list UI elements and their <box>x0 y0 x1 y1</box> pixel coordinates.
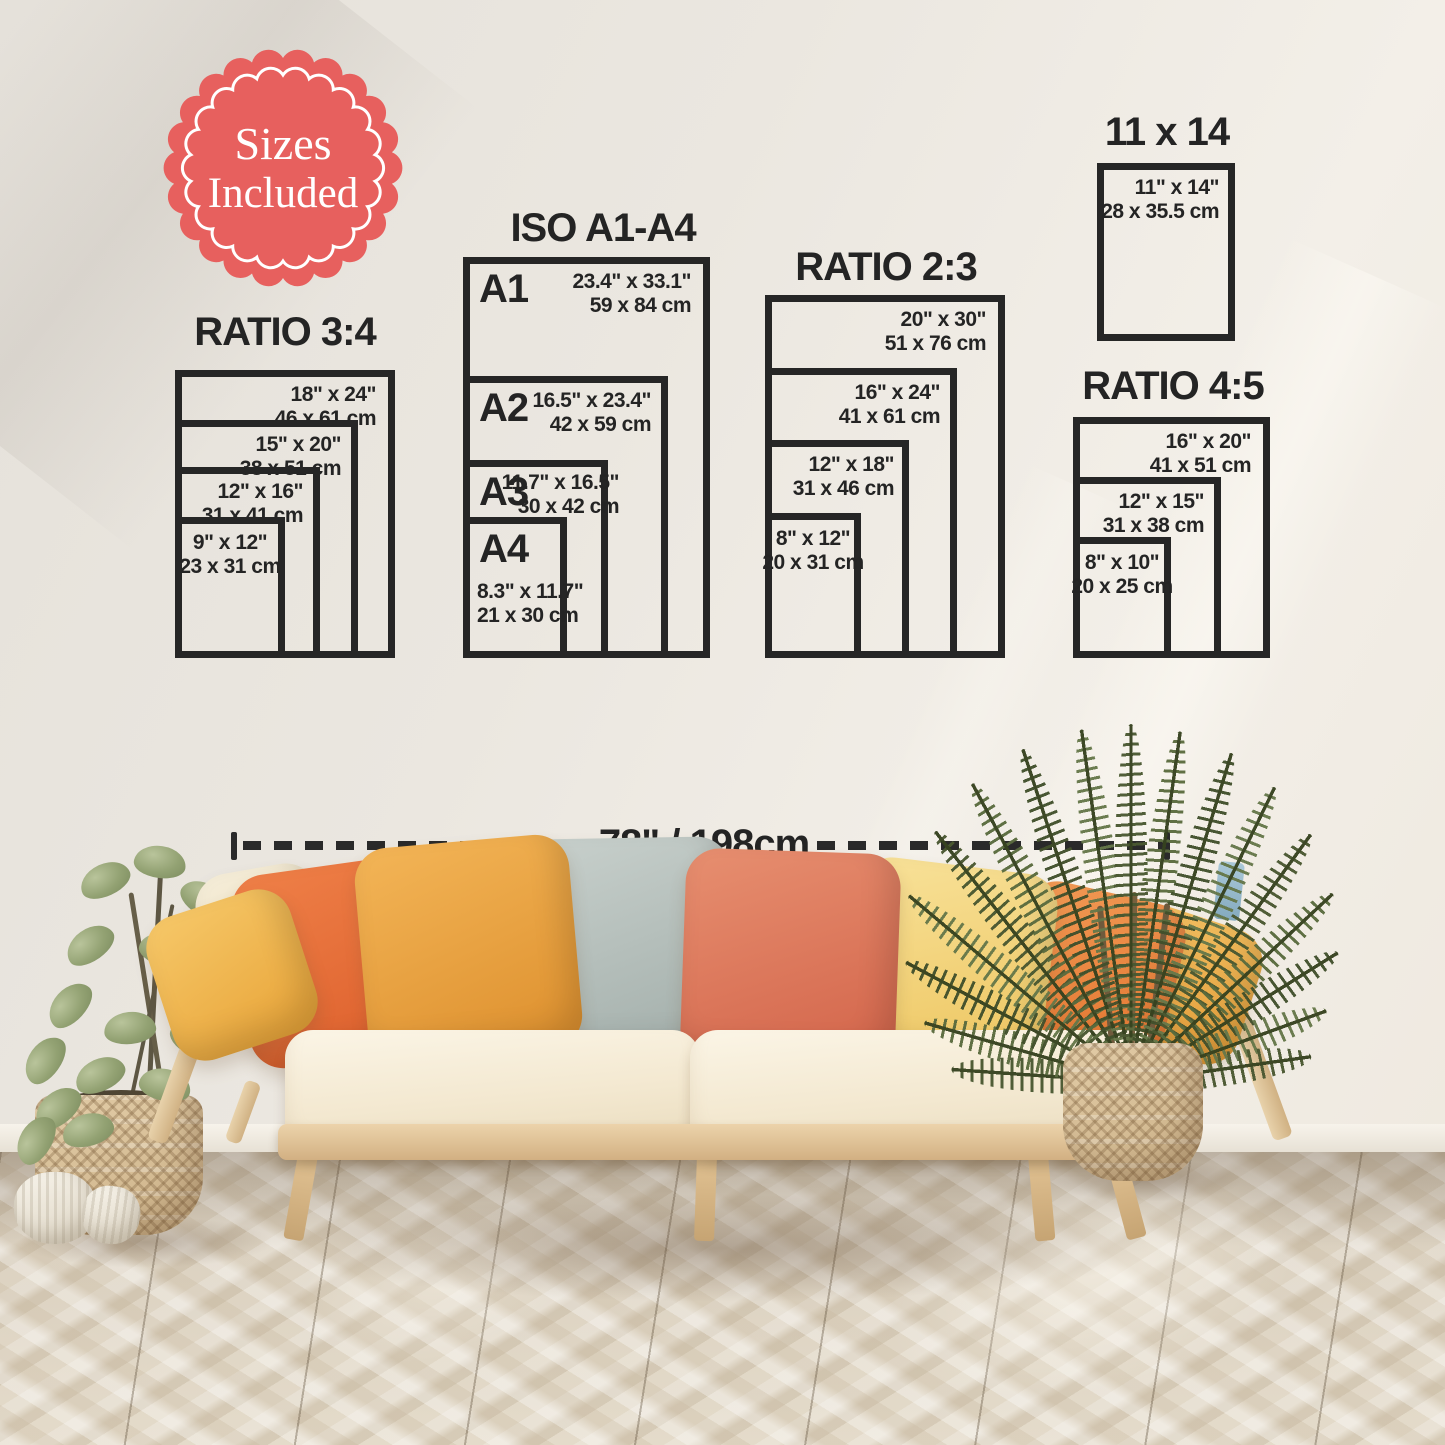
rect-a4: A4 8.3" x 11.7" 21 x 30 cm <box>463 517 567 658</box>
size-inch: 15" x 20" <box>240 433 341 457</box>
label-a1: 23.4" x 33.1" 59 x 84 cm <box>572 270 691 318</box>
fiddle-leaf <box>17 1030 73 1091</box>
room-mockup-scene: Sizes Included RATIO 3:4 18" x 24" 46 x … <box>0 0 1445 1445</box>
fiddle-leaf <box>41 975 100 1035</box>
badge-line2: Included <box>208 170 358 217</box>
label-a2-name: A2 <box>479 386 528 431</box>
sofa-frame-rail <box>278 1124 1168 1160</box>
rect-8x10: 8" x 10" 20 x 25 cm <box>1073 537 1171 658</box>
size-inch: 16" x 20" <box>1150 430 1251 454</box>
rect-9x12: 9" x 12" 23 x 31 cm <box>175 517 285 658</box>
rect-11x14: 11" x 14" 28 x 35.5 cm <box>1097 163 1235 341</box>
size-inch: 20" x 30" <box>885 308 986 332</box>
label-8x12: 8" x 12" 20 x 31 cm <box>762 527 863 575</box>
size-inch: 12" x 18" <box>793 453 894 477</box>
fiddle-leaf <box>75 855 136 906</box>
floor-shade <box>0 1152 1445 1247</box>
title-ratio-3-4: RATIO 3:4 <box>165 310 405 355</box>
size-cm: 42 x 59 cm <box>532 413 651 437</box>
badge-text: Sizes Included <box>161 46 405 290</box>
label-a4: 8.3" x 11.7" 21 x 30 cm <box>477 580 583 628</box>
label-16x24: 16" x 24" 41 x 61 cm <box>839 381 940 429</box>
size-cm: 20 x 31 cm <box>762 551 863 575</box>
size-cm: 31 x 38 cm <box>1103 514 1204 538</box>
size-inch: 16" x 24" <box>839 381 940 405</box>
title-ratio-2-3: RATIO 2:3 <box>762 245 1010 290</box>
badge-line1: Sizes <box>234 119 331 170</box>
sofa-leg-2 <box>694 1155 717 1242</box>
size-cm: 23 x 31 cm <box>179 555 280 579</box>
size-cm: 30 x 42 cm <box>502 495 619 519</box>
label-8x10: 8" x 10" 20 x 25 cm <box>1071 551 1172 599</box>
size-inch: 11.7" x 16.5" <box>502 471 619 495</box>
label-20x30: 20" x 30" 51 x 76 cm <box>885 308 986 356</box>
rect-8x12: 8" x 12" 20 x 31 cm <box>765 513 861 658</box>
size-inch: 23.4" x 33.1" <box>572 270 691 294</box>
size-cm: 28 x 35.5 cm <box>1101 200 1219 224</box>
size-cm: 59 x 84 cm <box>572 294 691 318</box>
size-inch: 18" x 24" <box>275 383 376 407</box>
title-ratio-4-5: RATIO 4:5 <box>1068 364 1278 409</box>
size-inch: 12" x 15" <box>1103 490 1204 514</box>
label-a3: 11.7" x 16.5" 30 x 42 cm <box>502 471 619 519</box>
size-cm: 21 x 30 cm <box>477 604 583 628</box>
size-cm: 51 x 76 cm <box>885 332 986 356</box>
label-9x12: 9" x 12" 23 x 31 cm <box>179 531 280 579</box>
size-inch: 16.5" x 23.4" <box>532 389 651 413</box>
size-inch: 8" x 12" <box>762 527 863 551</box>
title-iso-a1-a4: ISO A1-A4 <box>463 206 743 251</box>
size-inch: 9" x 12" <box>179 531 280 555</box>
size-cm: 20 x 25 cm <box>1071 575 1172 599</box>
size-cm: 41 x 51 cm <box>1150 454 1251 478</box>
fiddle-leaf <box>60 917 121 973</box>
label-12x15: 12" x 15" 31 x 38 cm <box>1103 490 1204 538</box>
measure-cap-left <box>231 832 237 860</box>
size-inch: 8.3" x 11.7" <box>477 580 583 604</box>
fiddle-leaf <box>132 843 188 882</box>
label-a1-name: A1 <box>479 267 528 312</box>
size-inch: 12" x 16" <box>202 480 303 504</box>
size-inch: 8" x 10" <box>1071 551 1172 575</box>
size-cm: 41 x 61 cm <box>839 405 940 429</box>
label-16x20: 16" x 20" 41 x 51 cm <box>1150 430 1251 478</box>
label-11x14: 11" x 14" 28 x 35.5 cm <box>1101 176 1219 224</box>
label-a4-name: A4 <box>479 527 528 572</box>
label-a2: 16.5" x 23.4" 42 x 59 cm <box>532 389 651 437</box>
size-inch: 11" x 14" <box>1101 176 1219 200</box>
title-11x14: 11 x 14 <box>1072 110 1262 155</box>
size-cm: 31 x 46 cm <box>793 477 894 501</box>
label-12x18: 12" x 18" 31 x 46 cm <box>793 453 894 501</box>
right-basket <box>1063 1043 1203 1181</box>
